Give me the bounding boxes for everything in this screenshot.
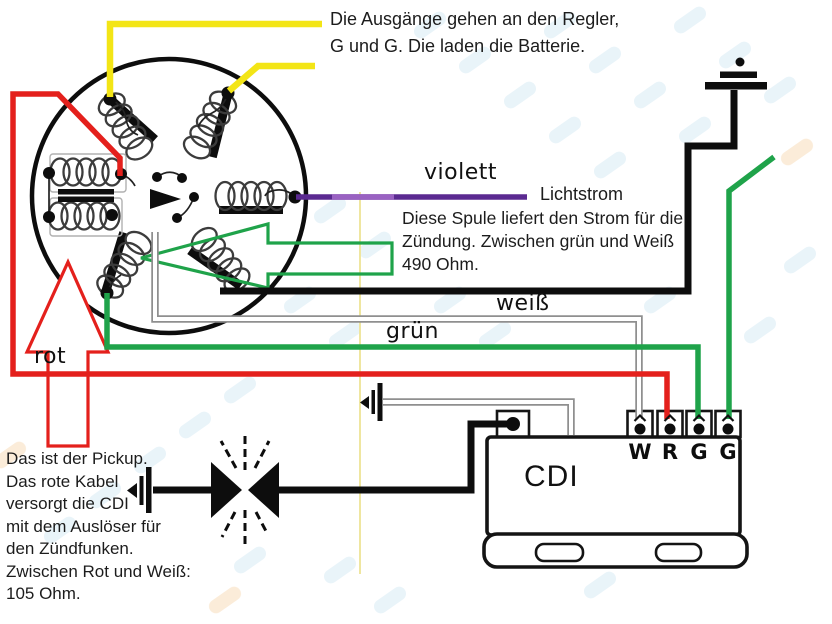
cdi-slot-left	[536, 544, 583, 561]
yellow-wire-2	[229, 66, 315, 91]
green-callout-arrow	[141, 224, 392, 288]
coil-top-right	[180, 87, 247, 167]
spark-plug-connector-small	[360, 383, 383, 421]
cdi-terminal-label-W: W	[626, 440, 654, 464]
coil-left-double	[49, 154, 127, 236]
red-wire-pickup-to-R	[13, 94, 667, 419]
wire-label-rot: rot	[34, 344, 66, 369]
pickup-line: mit dem Auslöser für	[6, 516, 191, 539]
pickup-line: Das ist der Pickup.	[6, 448, 191, 471]
wire-label-violett: violett	[424, 160, 497, 185]
white-wire-plug-to-cdi	[383, 402, 571, 435]
spule-annotation-line3: 490 Ohm.	[402, 253, 479, 276]
coil-right-lighting	[216, 182, 287, 214]
pickup-line: 105 Ohm.	[6, 583, 191, 606]
pickup-line: versorgt die CDI	[6, 493, 191, 516]
green-wire-right-to-G	[729, 157, 774, 419]
spule-annotation-line2: Zündung. Zwischen grün und Weiß	[402, 230, 674, 253]
cdi-terminal-label-G1: G	[685, 440, 713, 464]
wire-label-gruen: grün	[386, 319, 439, 344]
wire-label-weiss: weiß	[496, 291, 550, 316]
cdi-label: CDI	[524, 460, 579, 494]
pickup-line: Das rote Kabel	[6, 471, 191, 494]
regler-annotation-line2: G und G. Die laden die Batterie.	[330, 35, 585, 58]
ground-symbol	[705, 58, 767, 90]
cdi-pickup-connector-dot	[506, 417, 520, 431]
pickup-line: den Zündfunken.	[6, 538, 191, 561]
cdi-slot-right	[656, 544, 701, 561]
regler-annotation-line1: Die Ausgänge gehen an den Regler,	[330, 8, 619, 31]
stator-center-arrow	[150, 189, 181, 209]
cdi-terminal-label-R: R	[656, 440, 684, 464]
spule-annotation-line1: Diese Spule liefert den Strom für die	[402, 207, 683, 230]
lichtstrom-label: Lichtstrom	[540, 183, 623, 206]
wiring-diagram-canvas: Die Ausgänge gehen an den Regler, G und …	[0, 0, 832, 624]
cdi-terminal-boxes	[497, 411, 741, 437]
pickup-annotation: Das ist der Pickup. Das rote Kabel verso…	[6, 448, 191, 606]
spark-gap-symbol	[211, 462, 279, 518]
pickup-line: Zwischen Rot und Weiß:	[6, 561, 191, 584]
cdi-terminal-label-G2: G	[714, 440, 742, 464]
cdi-base-flange	[484, 534, 747, 567]
